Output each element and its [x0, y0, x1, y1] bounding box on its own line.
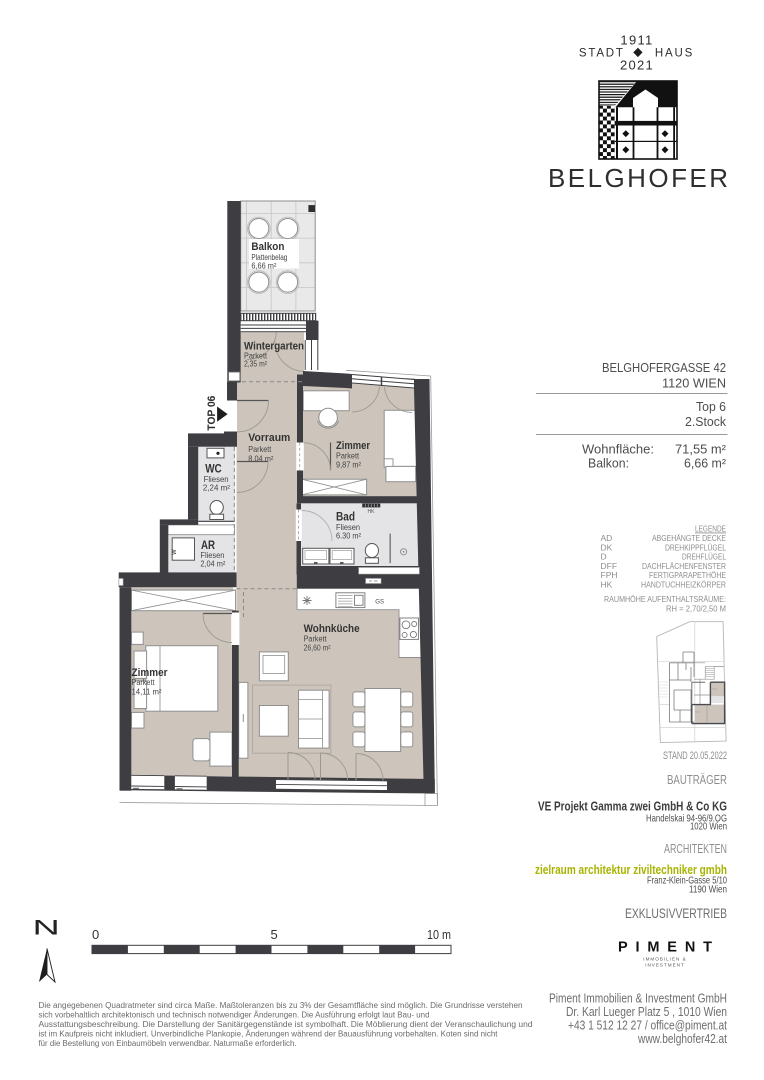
- svg-text:9,87 m²: 9,87 m²: [336, 461, 361, 470]
- svg-text:Piment Immobilien & Investment: Piment Immobilien & Investment GmbH: [549, 992, 727, 1006]
- svg-text:Vorraum: Vorraum: [248, 432, 290, 444]
- svg-text:Parkett: Parkett: [304, 635, 328, 644]
- svg-text:HAUS: HAUS: [655, 48, 694, 60]
- svg-text:IMMOBILIEN &: IMMOBILIEN &: [643, 957, 686, 962]
- svg-text:1190 Wien: 1190 Wien: [689, 884, 727, 896]
- svg-text:2.Stock: 2.Stock: [685, 415, 727, 429]
- svg-text:6,66 m²: 6,66 m²: [251, 261, 276, 270]
- svg-text:0: 0: [92, 927, 99, 942]
- svg-text:Zimmer: Zimmer: [336, 440, 371, 452]
- svg-text:sich vorbehaltlich architekton: sich vorbehaltlich architektonisch und t…: [39, 1011, 430, 1020]
- svg-text:LEGENDE: LEGENDE: [695, 524, 726, 534]
- svg-text:1120 WIEN: 1120 WIEN: [662, 377, 726, 391]
- svg-text:Wohnfläche:: Wohnfläche:: [582, 443, 654, 457]
- svg-text:Die angegebenen Quadratmeter s: Die angegebenen Quadratmeter sind circa …: [39, 1001, 523, 1010]
- svg-text:14,11 m²: 14,11 m²: [132, 688, 162, 697]
- svg-text:5: 5: [271, 927, 278, 942]
- svg-text:Ausstattungsbeschreibung. Die: Ausstattungsbeschreibung. Die Darstellun…: [39, 1020, 533, 1029]
- svg-text:STADT: STADT: [579, 48, 625, 60]
- svg-text:RH = 2,70/2,50 M: RH = 2,70/2,50 M: [666, 604, 726, 614]
- svg-text:BAUTRÄGER: BAUTRÄGER: [667, 772, 727, 787]
- svg-text:Parkett: Parkett: [336, 452, 360, 461]
- svg-text:INVESTMENT: INVESTMENT: [645, 963, 685, 968]
- svg-text:RAUMHÖHE AUFENTHALTSRÄUME:: RAUMHÖHE AUFENTHALTSRÄUME:: [604, 594, 726, 604]
- svg-text:TOP 06: TOP 06: [206, 396, 218, 431]
- svg-text:WC: WC: [205, 464, 222, 476]
- svg-text:8.04 m²: 8.04 m²: [248, 455, 273, 464]
- svg-text:VE Projekt Gamma zwei GmbH & C: VE Projekt Gamma zwei GmbH & Co KG: [538, 799, 727, 814]
- svg-text:Bad: Bad: [336, 512, 355, 524]
- svg-text:6,66 m²: 6,66 m²: [684, 457, 726, 471]
- svg-text:Balkon: Balkon: [251, 241, 284, 253]
- svg-text:www.belghofer42.at: www.belghofer42.at: [637, 1032, 727, 1046]
- svg-text:BELGHOFERGASSE 42: BELGHOFERGASSE 42: [602, 361, 726, 375]
- svg-text:Top 6: Top 6: [696, 400, 726, 414]
- svg-text:für die Bestellung von Einbaum: für die Bestellung von Einbaumöbeln verw…: [39, 1039, 297, 1048]
- svg-text:W: W: [172, 549, 178, 555]
- svg-text:ist im Kaufpreis nicht inkludi: ist im Kaufpreis nicht inkludiert. Unver…: [39, 1030, 499, 1039]
- svg-text:N: N: [33, 916, 60, 939]
- svg-text:2,24 m²: 2,24 m²: [203, 484, 230, 493]
- svg-text:HK: HK: [601, 580, 613, 590]
- svg-text:71,55 m²: 71,55 m²: [675, 443, 726, 457]
- svg-text:26,60 m²: 26,60 m²: [304, 644, 331, 653]
- svg-text:2,35 m²: 2,35 m²: [244, 360, 267, 369]
- svg-text:Parkett: Parkett: [132, 678, 156, 687]
- svg-text:BELGHOFER: BELGHOFER: [548, 163, 728, 193]
- svg-text:2,04 m²: 2,04 m²: [200, 560, 225, 569]
- svg-text:ARCHITEKTEN: ARCHITEKTEN: [664, 841, 727, 856]
- svg-text:Wohnküche: Wohnküche: [304, 623, 360, 635]
- svg-text:HANDTUCHHEIZKÖRPER: HANDTUCHHEIZKÖRPER: [641, 580, 726, 590]
- svg-text:EXKLUSIVVERTRIEB: EXKLUSIVVERTRIEB: [625, 905, 727, 921]
- svg-text:GS: GS: [375, 600, 384, 606]
- svg-text:HK: HK: [368, 509, 376, 515]
- svg-text:Balkon:: Balkon:: [588, 457, 629, 471]
- svg-text:STAND 20.05.2022: STAND 20.05.2022: [663, 750, 727, 762]
- svg-text:6.30 m²: 6.30 m²: [336, 532, 361, 541]
- svg-text:2021: 2021: [620, 58, 654, 73]
- svg-text:1020 Wien: 1020 Wien: [690, 821, 727, 833]
- svg-text:Dr. Karl Lueger Platz 5 , 1010: Dr. Karl Lueger Platz 5 , 1010 Wien: [566, 1005, 727, 1019]
- svg-text:1911: 1911: [620, 33, 653, 48]
- svg-text:+43 1 512 12 27 / office@pimen: +43 1 512 12 27 / office@piment.at: [568, 1019, 727, 1033]
- svg-text:Parkett: Parkett: [248, 445, 272, 454]
- svg-text:10 m: 10 m: [427, 927, 451, 942]
